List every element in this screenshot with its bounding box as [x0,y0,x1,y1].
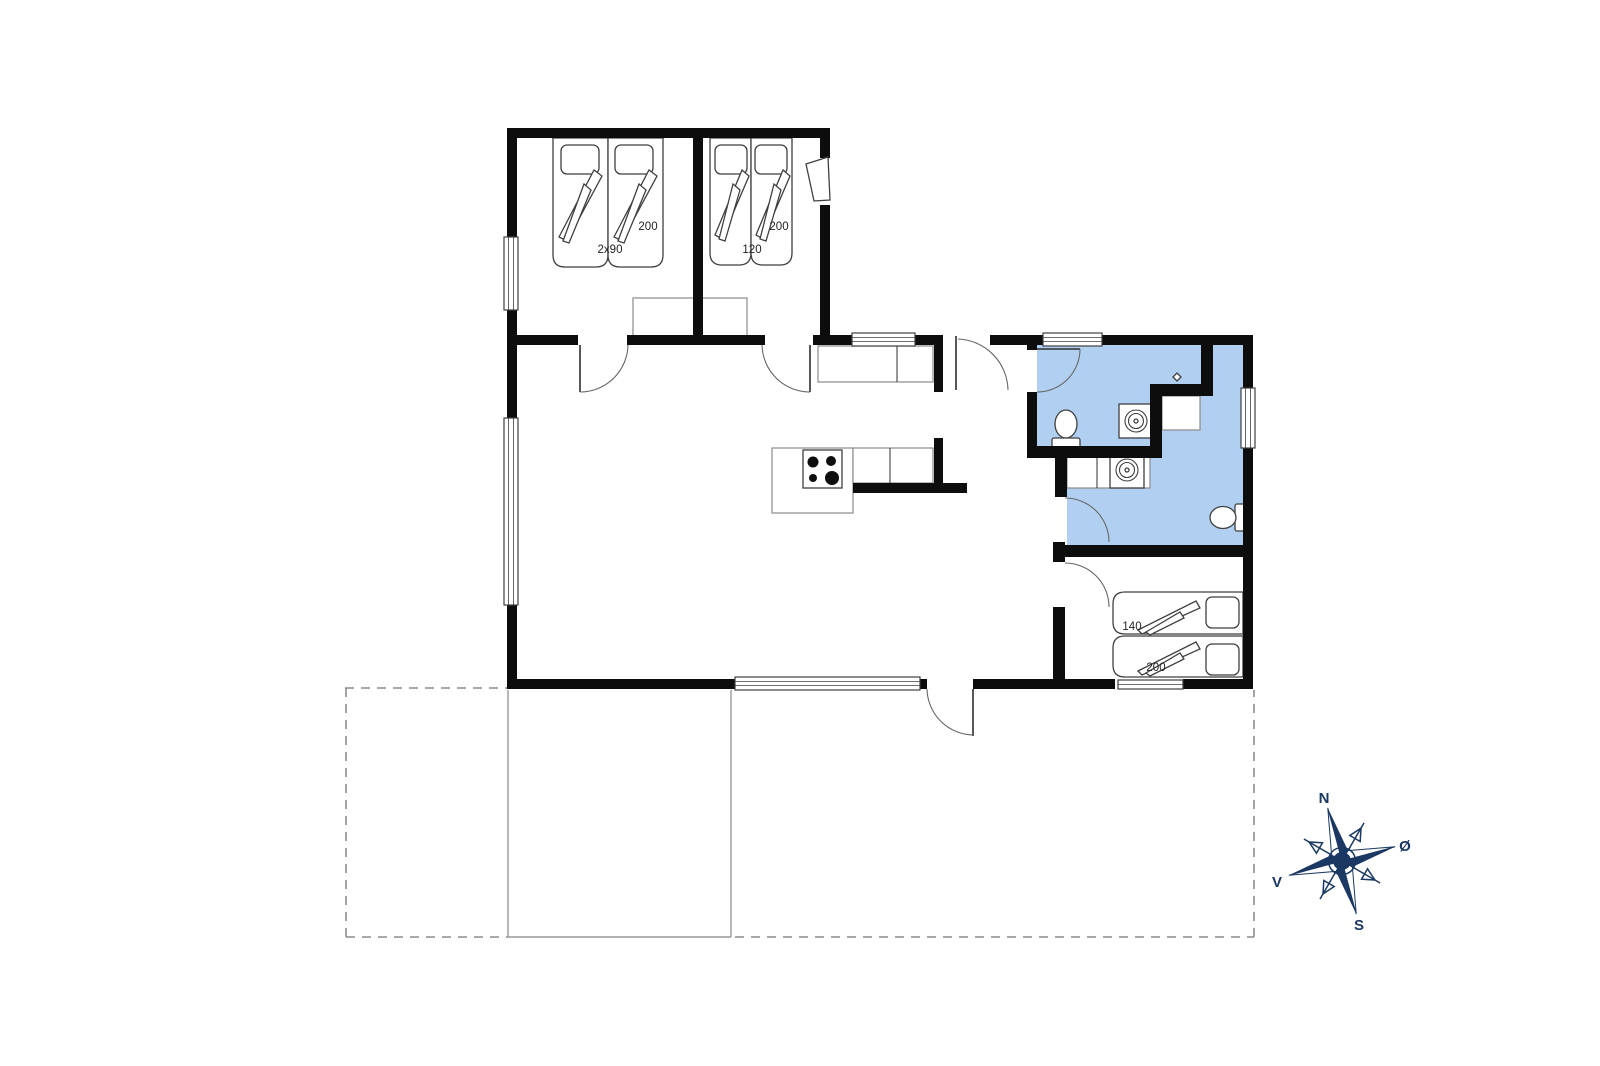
pillow [1206,644,1239,675]
compass-rose: N Ø S V [1272,790,1411,934]
wardrobe [633,298,747,340]
bed2-width-label: 120 [742,244,761,256]
bed3-width-label: 140 [1122,621,1141,633]
door-bedroom-3 [1065,563,1109,607]
floor-plan-page: 200 2x90 200 120 140 200 [0,0,1600,1066]
window [1241,388,1255,448]
sink-icon [1119,404,1153,438]
terrace-outline [345,688,1254,937]
door-exterior-leaf [806,157,830,201]
window [504,237,518,310]
door-bedroom-1 [580,345,628,392]
pillow [615,145,653,174]
floor-plan-svg: 200 2x90 200 120 140 200 [0,0,1600,1066]
bed3-length-label: 200 [1146,662,1165,674]
door-terrace [927,689,973,736]
compass-label-east: Ø [1399,838,1411,855]
window [1043,333,1102,346]
window [504,418,518,605]
pillow [1206,597,1239,628]
pillow [561,145,599,174]
compass-label-north: N [1319,790,1330,807]
window [1118,680,1183,689]
toilet-icon [1210,504,1246,531]
sideboard [818,346,933,382]
bed2-length-label: 200 [769,221,788,233]
bed1-length-label: 200 [638,221,657,233]
compass-label-west: V [1272,874,1282,891]
kitchen-island [772,448,853,513]
pillow [755,145,787,174]
window [852,333,915,346]
bed1-width-label: 2x90 [598,244,623,256]
window [735,677,920,690]
door-bedroom-2 [762,345,810,392]
kitchen-counter [853,448,933,483]
sink-icon [1110,453,1144,488]
stove-icon [803,450,842,488]
bath-niche-shelf [1162,396,1200,430]
compass-label-south: S [1354,917,1364,934]
bedroom-3-bed [1113,592,1243,677]
